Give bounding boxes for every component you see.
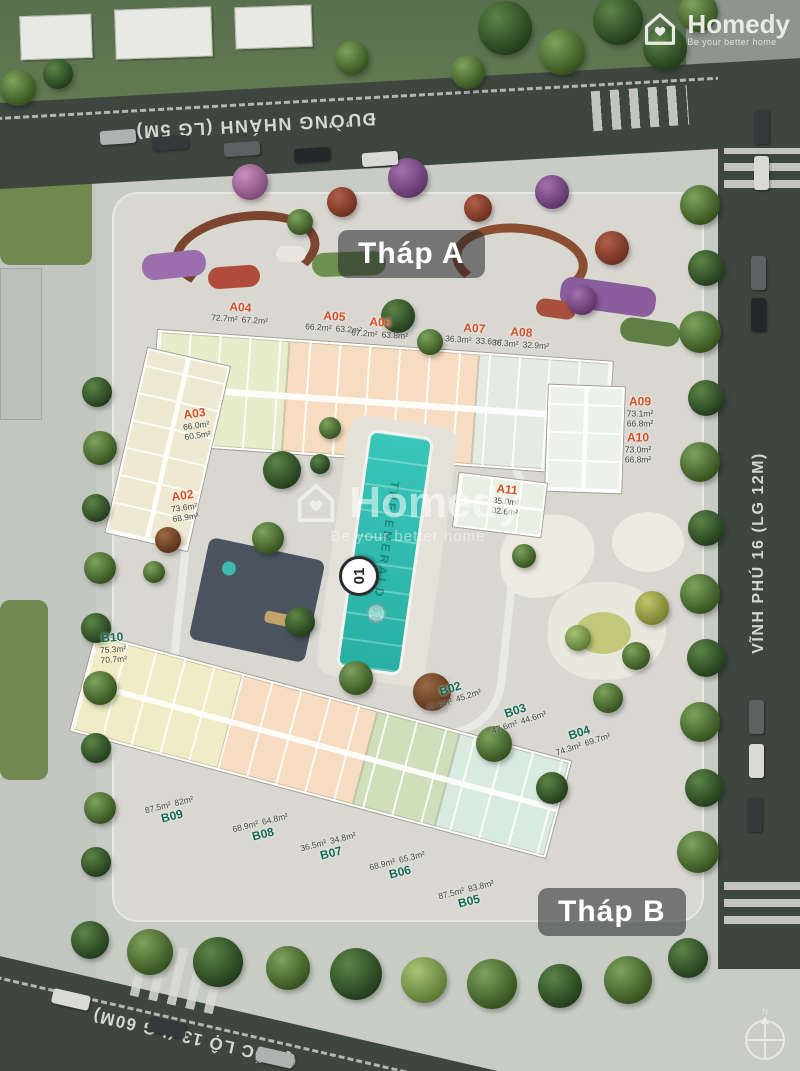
unit-label: A0273.6m²68.9m² [167,487,202,524]
unit-label: B0474.3m²69.7m² [548,717,613,758]
watermark-logo-text: Homedy [349,478,523,528]
homedy-house-icon [641,10,679,48]
unit-label: B0247.8m²45.2m² [419,673,484,714]
tower-b-badge: Tháp B [538,888,686,936]
center-watermark: Homedy Be your better home [238,478,578,545]
unit-label: A0667.2m²63.8m² [349,314,411,342]
pool-badge: 01 [339,556,379,596]
site-plan-image: ĐƯỜNG NHÁNH (LG 5M) VĨNH PHÚ 16 (LG 12M)… [0,0,800,1071]
unit-label: A0366.0m²60.5m² [179,405,214,442]
unit-label: B0736.5m²34.8m² [298,830,363,868]
unit-label: A0973.1m²66.8m² [625,395,655,428]
tower-a-badge: Tháp A [338,230,485,278]
unit-id: A09 [625,395,655,409]
unit-label: B0587.5m²83.8m² [436,878,501,916]
watermark-tagline: Be your better home [238,528,578,545]
unit-label: B0668.9m²65.3m² [367,849,432,887]
unit-label: B0347.6m²44.6m² [484,695,549,736]
unit-label: A1073.0m²66.8m² [623,431,653,464]
unit-areas: 73.0m²66.8m² [623,445,653,465]
unit-label: A0472.7m²67.2m² [209,299,271,327]
unit-areas: 72.7m²67.2m² [209,313,270,327]
unit-areas: 66.0m²60.5m² [181,419,214,443]
compass-icon: N [735,1008,795,1068]
homedy-house-icon [293,480,339,526]
unit-areas: 36.3m²32.9m² [490,338,551,352]
logo-tagline: Be your better home [687,37,790,47]
unit-label: B0987.5m²82m² [142,794,200,830]
homedy-logo: Homedy Be your better home [641,10,790,48]
unit-areas: 73.1m²66.8m² [625,409,655,429]
unit-id: A10 [623,431,653,445]
unit-areas: 67.2m²63.8m² [349,328,410,342]
unit-label: B1075.3m²70.7m² [97,630,130,665]
unit-areas: 73.6m²68.9m² [169,501,202,525]
logo-text: Homedy [687,11,790,37]
unit-label: B0868.9m²64.8m² [230,811,295,849]
unit-areas: 75.3m²70.7m² [98,644,130,666]
compass-north-label: N [762,1008,768,1017]
unit-label: A0836.3m²32.9m² [490,324,552,352]
